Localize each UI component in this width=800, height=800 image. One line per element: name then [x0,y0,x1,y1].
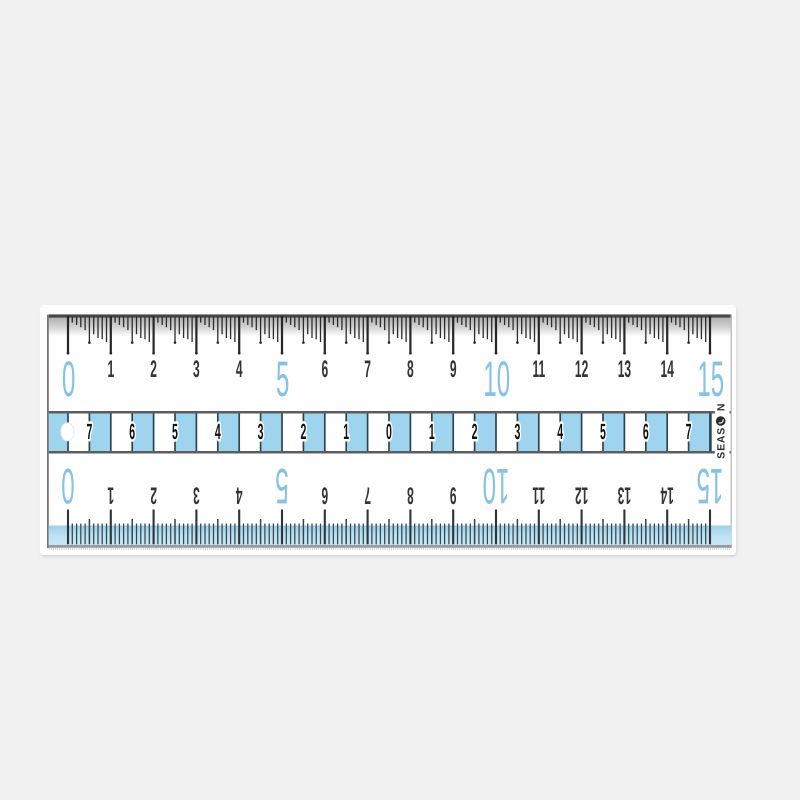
svg-text:4: 4 [215,419,221,444]
svg-text:N: N [716,404,728,412]
svg-text:14: 14 [660,481,674,508]
svg-text:12: 12 [575,356,588,383]
svg-text:1: 1 [343,419,349,444]
svg-text:2: 2 [472,419,478,444]
svg-text:10: 10 [483,351,510,407]
svg-text:4: 4 [557,419,563,444]
svg-text:15: 15 [697,351,724,407]
svg-text:11: 11 [532,481,545,508]
svg-text:S: S [716,452,728,459]
svg-text:6: 6 [321,481,328,508]
svg-text:5: 5 [600,419,606,444]
svg-text:7: 7 [86,419,92,444]
svg-text:5: 5 [275,458,288,514]
svg-text:13: 13 [618,481,631,508]
svg-text:1: 1 [107,356,114,383]
svg-text:0: 0 [386,419,392,444]
svg-text:8: 8 [407,356,414,383]
svg-text:12: 12 [575,481,588,508]
svg-text:15: 15 [697,458,724,514]
svg-text:5: 5 [276,351,289,407]
svg-text:3: 3 [258,419,264,444]
svg-text:1: 1 [429,419,435,444]
svg-text:13: 13 [618,356,631,383]
svg-text:2: 2 [300,419,306,444]
svg-text:7: 7 [364,356,371,383]
svg-text:7: 7 [364,481,371,508]
svg-text:6: 6 [321,356,328,383]
svg-text:10: 10 [483,458,510,514]
svg-text:6: 6 [129,419,135,444]
svg-text:2: 2 [150,481,157,508]
svg-text:3: 3 [193,356,200,383]
svg-text:8: 8 [407,481,414,508]
svg-text:7: 7 [686,419,692,444]
svg-text:9: 9 [450,481,457,508]
svg-text:2: 2 [150,356,157,383]
svg-text:A: A [716,435,728,443]
svg-text:14: 14 [661,356,675,383]
svg-text:3: 3 [193,481,200,508]
svg-text:1: 1 [107,481,114,508]
svg-text:4: 4 [236,356,243,383]
svg-text:4: 4 [236,481,243,508]
svg-text:0: 0 [62,351,75,407]
svg-text:E: E [716,444,728,451]
svg-text:S: S [716,428,728,435]
svg-text:0: 0 [61,458,74,514]
svg-text:9: 9 [450,356,457,383]
svg-text:3: 3 [514,419,520,444]
svg-text:5: 5 [172,419,178,444]
svg-text:6: 6 [643,419,649,444]
svg-text:11: 11 [532,356,545,383]
